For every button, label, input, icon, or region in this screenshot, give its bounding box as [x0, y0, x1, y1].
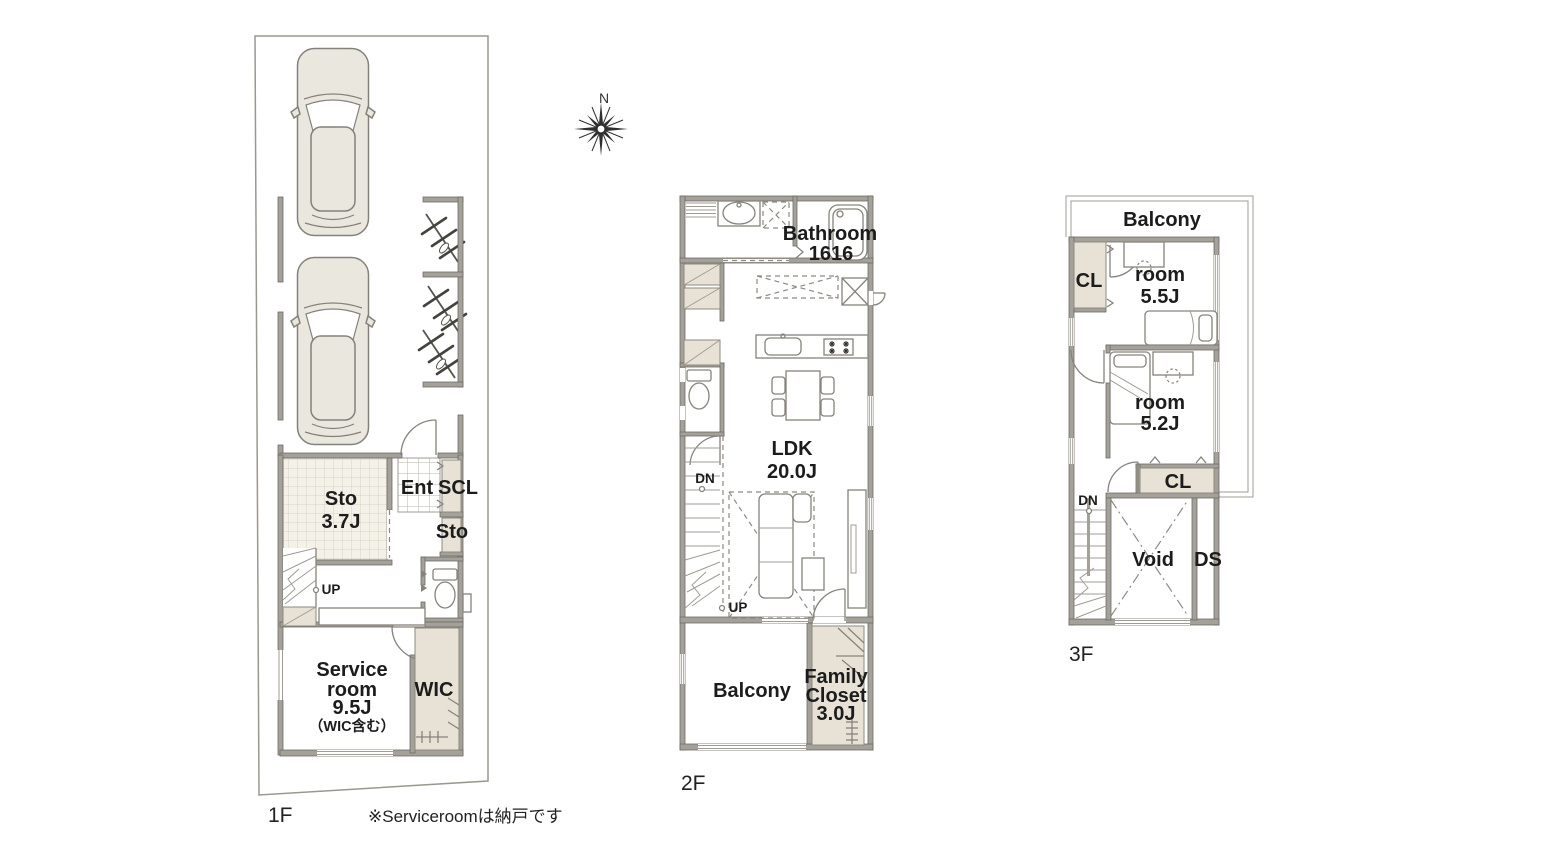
scl-label: SCL: [438, 477, 478, 499]
living-furniture: [729, 371, 866, 618]
void-label: Void: [1132, 549, 1174, 571]
coffee-table-icon: [802, 558, 824, 590]
kitchen-sink-icon: [765, 338, 801, 355]
floor-label-3f: 3F: [1069, 643, 1094, 666]
car-icon: [291, 49, 375, 236]
cl-upper-label: CL: [1076, 270, 1103, 292]
room52-label: room: [1135, 392, 1185, 414]
sofa-icon: [759, 494, 793, 598]
service-room-note: （WIC含む）: [309, 717, 395, 735]
floor-label-1f: 1F: [268, 804, 293, 827]
ds-label: DS: [1194, 549, 1222, 571]
car-icon: [291, 258, 375, 445]
family-closet-size: 3.0J: [817, 703, 856, 725]
counter-shelf: [319, 608, 425, 625]
sto-closet-label: Sto: [436, 521, 468, 543]
stove-icon: [824, 339, 853, 355]
sto-room-size: 3.7J: [322, 511, 361, 533]
north-label: N: [599, 90, 609, 106]
washroom-fixtures: [686, 201, 789, 228]
bathroom-label: Bathroom: [783, 223, 877, 245]
balcony-label-3f: Balcony: [1123, 209, 1202, 231]
exterior-shelf: [463, 594, 471, 612]
floorplan-3f: Balcony CL room 5.5J room 5.2J CL DN Voi…: [1066, 196, 1253, 666]
hall-cabinets: [684, 264, 720, 365]
dining-table-icon: [786, 371, 820, 420]
toilet-icon: [687, 370, 711, 409]
floorplan-1f: Sto 3.7J Ent SCL Sto UP Service room 9.5…: [255, 36, 563, 827]
wic-label: WIC: [415, 679, 454, 701]
room55-label: room: [1135, 264, 1185, 286]
floorplan-drawing: N: [0, 0, 1560, 848]
up-label-1f: UP: [322, 582, 341, 597]
balcony-label-2f: Balcony: [713, 680, 792, 702]
stairs-1f: [283, 548, 319, 607]
up-label-2f: UP: [729, 600, 748, 615]
desk-icon: [1153, 352, 1193, 375]
stairs-2f: [683, 436, 725, 616]
ldk-size: 20.0J: [767, 461, 817, 483]
cl-lower-label: CL: [1165, 471, 1192, 493]
stairs-3f: [1074, 498, 1106, 618]
entrance-label: Ent: [401, 477, 434, 499]
floorplan-page: N: [0, 0, 1560, 848]
floor-label-2f: 2F: [681, 772, 706, 795]
footnote: ※Serviceroomは納戸です: [368, 807, 563, 826]
service-room-label-line1: Service: [316, 659, 387, 681]
compass-icon: N: [574, 90, 628, 156]
room55-size: 5.5J: [1141, 286, 1180, 308]
toilet-icon: [433, 569, 457, 608]
service-room-size: 9.5J: [333, 697, 372, 719]
dn-label-3f: DN: [1078, 493, 1098, 508]
sto-room-label: Sto: [325, 488, 357, 510]
room52-size: 5.2J: [1141, 413, 1180, 435]
bed-icon: [1145, 311, 1217, 345]
bathroom-size: 1616: [809, 243, 854, 265]
washbasin-icon: [723, 202, 755, 224]
dn-label-2f: DN: [695, 471, 715, 486]
under-stair-cabinet: [283, 607, 316, 626]
floorplan-2f: Bathroom 1616 LDK 20.0J DN UP Balcony Fa…: [680, 196, 885, 795]
ldk-label: LDK: [771, 438, 813, 460]
kitchen: [756, 276, 868, 358]
